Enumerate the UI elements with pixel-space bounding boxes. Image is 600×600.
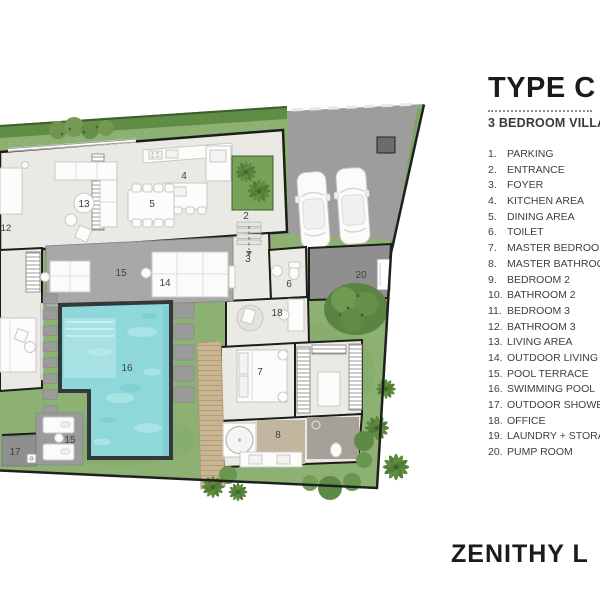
room-legend: 1.PARKING 2.ENTRANCE 3.FOYER 4.KITCHEN A…: [488, 147, 600, 461]
legend-item: 5.DINING AREA: [488, 210, 600, 226]
legend-item-label: LIVING AREA: [507, 336, 572, 348]
legend-item: 15.POOL TERRACE: [488, 367, 600, 383]
legend-item-number: 4.: [488, 194, 507, 210]
legend-item-number: 1.: [488, 147, 507, 163]
nightstand: [278, 350, 288, 360]
parking-area: [288, 104, 418, 249]
room-label: 18: [271, 308, 283, 319]
coffee-table-small: [65, 214, 77, 226]
legend-item-number: 15.: [488, 367, 507, 383]
room-label: 6: [286, 279, 292, 290]
legend-item: 14.OUTDOOR LIVING: [488, 351, 600, 367]
legend-item-label: MASTER BEDROOM: [507, 242, 600, 254]
bush: [318, 476, 342, 500]
room-label: 4: [181, 171, 187, 182]
pillow: [239, 376, 248, 397]
legend-item-number: 10.: [488, 288, 507, 304]
desk: [288, 299, 304, 331]
bush: [354, 431, 374, 451]
legend-item: 16.SWIMMING POOL: [488, 382, 600, 398]
legend-item-label: LAUNDRY + STORAGE: [507, 430, 600, 442]
legend-item: 9.BEDROOM 2: [488, 273, 600, 289]
legend-item-label: KITCHEN AREA: [507, 195, 584, 207]
side-table: [141, 268, 151, 278]
legend-item-number: 19.: [488, 429, 507, 445]
legend-item: 18.OFFICE: [488, 414, 600, 430]
floor-plan-page: 2 3 4 5 6 7 8 12 13 14 15 15 16 17 18 20…: [0, 0, 600, 600]
bed-partial: [0, 168, 22, 214]
room-label: 20: [355, 270, 367, 281]
legend-item-label: PUMP ROOM: [507, 446, 573, 458]
pool-ledge: [64, 318, 116, 378]
legend-item-label: OUTDOOR SHOWER: [507, 399, 600, 411]
planter: [232, 156, 273, 210]
pillow: [239, 353, 248, 374]
stool: [174, 207, 182, 214]
room-label: 8: [275, 430, 281, 441]
nightstand: [278, 392, 288, 402]
legend-item-label: DINING AREA: [507, 211, 575, 223]
legend-item-number: 9.: [488, 273, 507, 289]
legend-item-label: BATHROOM 3: [507, 321, 576, 333]
legend-item-number: 5.: [488, 210, 507, 226]
stool: [186, 207, 194, 214]
room-label: 7: [257, 367, 263, 378]
legend-item-label: MASTER BATHROOM: [507, 258, 600, 270]
legend-item: 20.PUMP ROOM: [488, 445, 600, 461]
page-subtitle: 3 BEDROOM VILLA: [488, 116, 600, 130]
legend-item-number: 14.: [488, 351, 507, 367]
room-label: 5: [149, 199, 155, 210]
legend-item-label: OUTDOOR LIVING: [507, 352, 598, 364]
legend-item-number: 11.: [488, 304, 507, 320]
wood-deck: [197, 341, 225, 489]
legend-item-number: 18.: [488, 414, 507, 430]
legend-item-label: TOILET: [507, 226, 544, 238]
legend-item: 7.MASTER BEDROOM: [488, 241, 600, 257]
legend-item: 17.OUTDOOR SHOWER: [488, 398, 600, 414]
pool-terrace: [41, 237, 234, 308]
legend-item: 13.LIVING AREA: [488, 335, 600, 351]
room-label: 2: [243, 211, 249, 222]
room-label: 13: [78, 199, 90, 210]
bush: [302, 475, 318, 491]
legend-item-label: FOYER: [507, 179, 543, 191]
closet-island: [318, 372, 340, 406]
legend-item-number: 2.: [488, 163, 507, 179]
lounger-area: [36, 413, 83, 465]
stool: [25, 342, 36, 353]
room-label: 3: [245, 254, 251, 265]
legend-item-label: BATHROOM 2: [507, 289, 576, 301]
utility-box: [377, 137, 395, 153]
legend-item: 1.PARKING: [488, 147, 600, 163]
legend-item-number: 20.: [488, 445, 507, 461]
brand-logotype: ZENITHY L: [451, 540, 589, 569]
legend-item-label: ENTRANCE: [507, 164, 565, 176]
legend-item: 6.TOILET: [488, 225, 600, 241]
dotted-divider: [488, 110, 592, 112]
room-label: 16: [121, 363, 133, 374]
legend-item-number: 12.: [488, 320, 507, 336]
wc: [331, 443, 342, 457]
bush: [356, 452, 372, 468]
legend-item-number: 16.: [488, 382, 507, 398]
page-title: TYPE C: [488, 72, 596, 105]
room-label: 17: [9, 447, 21, 458]
legend-item-number: 8.: [488, 257, 507, 273]
sofa-back: [55, 162, 117, 180]
legend-item-number: 6.: [488, 225, 507, 241]
legend-item-label: SWIMMING POOL: [507, 383, 595, 395]
room-label: 12: [1, 223, 12, 234]
legend-item: 8.MASTER BATHROOM: [488, 257, 600, 273]
legend-item-number: 3.: [488, 178, 507, 194]
legend-item: 4.KITCHEN AREA: [488, 194, 600, 210]
legend-item-label: OFFICE: [507, 415, 546, 427]
legend-item-label: POOL TERRACE: [507, 368, 589, 380]
legend-item: 10.BATHROOM 2: [488, 288, 600, 304]
legend-item-label: BEDROOM 2: [507, 274, 570, 286]
legend-item: 12.BATHROOM 3: [488, 320, 600, 336]
stool: [198, 207, 206, 214]
sofa-side: [100, 180, 117, 227]
legend-item-number: 7.: [488, 241, 507, 257]
pool-side-table: [55, 434, 64, 443]
side-table: [41, 273, 50, 282]
room-label: 15: [64, 435, 76, 446]
legend-item-number: 17.: [488, 398, 507, 414]
legend-item-number: 13.: [488, 335, 507, 351]
basin: [272, 266, 283, 277]
legend-item-label: PARKING: [507, 148, 553, 160]
room-label: 15: [115, 268, 127, 279]
legend-item-label: BEDROOM 3: [507, 305, 570, 317]
legend-item: 19.LAUNDRY + STORAGE: [488, 429, 600, 445]
legend-item: 11.BEDROOM 3: [488, 304, 600, 320]
legend-item: 2.ENTRANCE: [488, 163, 600, 179]
legend-item: 3.FOYER: [488, 178, 600, 194]
room-label: 14: [159, 278, 171, 289]
